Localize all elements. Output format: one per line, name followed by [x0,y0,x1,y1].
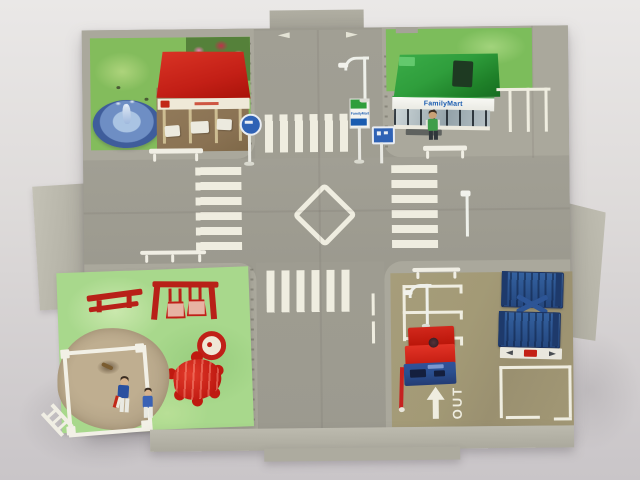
pavilion-roof [156,51,250,100]
round-road-sign [240,114,262,136]
guardrail-leg [145,255,148,263]
gate-panel [428,364,444,369]
picnic-table [164,125,180,137]
seesaw-print-leg [127,296,132,308]
familymart-store: FamilyMart [386,46,507,136]
bottom-tab [264,447,460,462]
park-bench-leg [153,154,156,162]
folded-blue-lift [496,271,568,365]
pavilion-logo-mark [161,101,170,108]
figure-leg [149,407,153,418]
figure-leg [125,398,130,412]
ladybug-climber [167,352,228,406]
pole-sign-text: FamilyMart [351,109,367,119]
guardrail-leg [453,272,456,279]
lift-panel-cap [552,312,559,346]
crosswalk-south [266,270,354,313]
street-lamp-pole [363,57,366,101]
guardrail-leg [198,254,201,262]
grass-speck [116,86,120,89]
photo-toy-town-playset: FamilyMart FamilyMart [0,0,640,480]
store-bench-leg [426,151,429,159]
exit-out-marking: OUT [449,378,466,426]
swing-print-rope [188,286,191,300]
ladder-rung [57,421,68,431]
parking-stall-line [568,365,572,417]
lift-panel-cap [555,272,562,306]
figure-child [140,388,156,418]
pole-sign-blue-stripe [351,119,367,126]
store-parking-line [526,88,529,132]
swing-print-seat [187,299,207,316]
store-roof-label [399,57,415,66]
guardrail-leg [171,255,174,263]
street-lamp-base [360,98,369,102]
store-parking-line [544,88,547,132]
parking-stall-tick [459,285,462,294]
parking-stall-tick [460,337,463,346]
parking-stall-line [499,366,503,418]
figure-leg [144,407,148,418]
gate-window [434,370,445,376]
blue-sign-glyph [377,131,381,135]
playset-group: FamilyMart FamilyMart [0,0,640,480]
swing-print-seat [166,301,186,318]
parking-stall-tick [506,416,540,419]
street-lamp-pole [466,194,469,236]
street-lamp-head [338,63,348,68]
lift-panel-cap [501,271,508,305]
roadside-rail [372,293,375,315]
lift-panel-cap [498,311,505,345]
sign-pole [248,134,251,164]
picnic-table [217,119,232,131]
figure-torso [428,119,438,131]
swing-print-rope [178,288,181,302]
sign-pole [380,142,383,163]
sandbox-corner-post [141,420,151,430]
guardrail-leg [416,272,419,279]
pavilion-sign-mark [195,102,219,105]
roadside-rail [372,321,375,343]
parking-stall-line [403,311,463,315]
round-sign-glyph [245,121,253,124]
street-lamp-head [404,290,413,295]
parking-stall-tick [460,311,463,320]
blue-sign-glyph [384,131,388,134]
ring-print-dot [207,342,212,347]
parking-stall-tick [554,417,572,420]
sign-base [354,160,364,164]
store-bench-leg [461,150,464,158]
store-parking-line [496,88,550,92]
store-pole-sign: FamilyMart [350,98,370,128]
sign-pole [358,127,361,163]
grass-tab-notch [396,27,418,33]
street-lamp-pole [425,284,428,326]
sign-base [244,162,254,166]
gate-window [410,369,426,378]
sandbox-corner-post [60,349,70,359]
park-bench-leg [195,153,198,161]
store-roof-vent [452,60,473,87]
gate-barrier-tip [399,407,405,412]
grass-speck [145,98,149,101]
figure-leg [434,131,438,140]
swing-print-rope [198,286,201,300]
sandbox-corner-post [135,343,145,353]
seesaw-print-leg [97,300,102,312]
figure-child [113,376,133,415]
picnic-table [191,121,210,134]
exit-arrow-shaft [433,399,439,419]
blue-road-sign [372,126,395,144]
lift-base-red-light [524,350,537,357]
figure-leg [429,131,433,140]
figure-store-clerk [425,109,441,141]
fountain-splash [113,99,141,108]
crosswalk-north [265,114,353,153]
store-parking-line [508,88,511,132]
swing-print-rope [169,289,172,303]
